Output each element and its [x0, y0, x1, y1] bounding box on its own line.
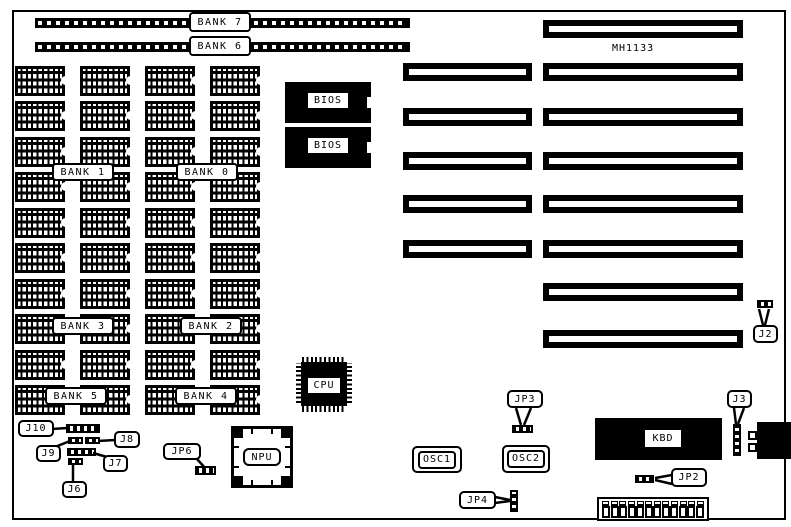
memory-chip	[15, 66, 65, 96]
power-connector	[597, 497, 709, 521]
jumper-label-j3: J3	[727, 390, 752, 408]
bank6-label: BANK 6	[189, 36, 251, 56]
bios-chip-2-label: BIOS	[308, 138, 348, 153]
jumper-pins-jp2	[635, 475, 654, 483]
memory-chip	[15, 350, 65, 380]
expansion-slot	[543, 108, 743, 126]
memory-chip	[145, 101, 195, 131]
keyboard-connector-pin	[748, 443, 757, 452]
memory-chip	[80, 243, 130, 273]
npu-corner	[281, 429, 290, 438]
power-connector-pin	[611, 506, 619, 518]
memory-chip	[80, 279, 130, 309]
bios-chip-notch	[367, 142, 372, 153]
npu-label: NPU	[243, 448, 281, 466]
npu-corner	[234, 429, 243, 438]
kbd-label: KBD	[645, 430, 681, 447]
jumper-label-jp6: JP6	[163, 443, 201, 460]
keyboard-connector-pin	[748, 431, 757, 440]
jumper-label-j2: J2	[753, 325, 778, 343]
memory-chip	[15, 208, 65, 238]
power-connector-pin	[645, 506, 653, 518]
memory-chip	[145, 243, 195, 273]
memory-chip	[145, 66, 195, 96]
bank0-label: BANK 0	[176, 163, 238, 181]
npu-corner	[281, 476, 290, 485]
jumper-pins-j7	[67, 448, 96, 456]
jumper-label-jp3: JP3	[507, 390, 543, 408]
expansion-slot	[403, 108, 532, 126]
power-connector-pin	[662, 506, 670, 518]
osc2-label: OSC2	[507, 450, 545, 468]
bios-chip-notch	[367, 97, 372, 108]
npu-socket: NPU	[231, 426, 293, 488]
memory-chip	[210, 350, 260, 380]
power-connector-pins	[602, 506, 704, 518]
oscillator-osc2: OSC2	[502, 445, 550, 473]
memory-chip	[80, 66, 130, 96]
expansion-slot	[543, 63, 743, 81]
memory-chip	[210, 66, 260, 96]
power-connector-pin	[653, 506, 661, 518]
bank3-label: BANK 3	[52, 317, 114, 335]
keyboard-din-connector	[757, 422, 791, 459]
bios-chip-1-label: BIOS	[308, 93, 348, 108]
expansion-slot	[543, 283, 743, 301]
power-connector-pin	[619, 506, 627, 518]
bank7-label: BANK 7	[189, 12, 251, 32]
cpu-pins-bottom	[302, 406, 346, 412]
bank2-label: BANK 2	[180, 317, 242, 335]
jumper-pins-jp4	[510, 490, 518, 512]
memory-chip	[15, 101, 65, 131]
power-connector-pin	[670, 506, 678, 518]
expansion-slot	[403, 152, 532, 170]
memory-chip	[145, 208, 195, 238]
jumper-pins-jp6	[195, 466, 216, 475]
oscillator-osc1: OSC1	[412, 446, 462, 473]
jumper-label-j7: J7	[103, 455, 128, 472]
jumper-label-j9: J9	[36, 445, 61, 462]
memory-chip	[80, 101, 130, 131]
expansion-slot	[403, 195, 532, 213]
power-connector-pin	[602, 506, 610, 518]
jumper-pins-j8	[85, 437, 100, 444]
jumper-pins-jp3	[512, 425, 533, 433]
expansion-slot	[543, 195, 743, 213]
osc1-label: OSC1	[418, 451, 456, 469]
npu-corner	[234, 476, 243, 485]
expansion-slot	[543, 152, 743, 170]
power-connector-pin	[696, 506, 704, 518]
memory-chip	[210, 208, 260, 238]
jumper-pins-j3	[733, 424, 741, 456]
memory-chip	[15, 243, 65, 273]
jumper-pins-j10	[66, 424, 100, 433]
jumper-label-jp2: JP2	[671, 468, 707, 487]
jumper-pins-j6	[68, 458, 83, 465]
expansion-slot	[543, 20, 743, 38]
memory-chip	[80, 208, 130, 238]
power-connector-pin	[636, 506, 644, 518]
jumper-label-j6: J6	[62, 481, 87, 498]
bank5-label: BANK 5	[45, 387, 107, 405]
memory-chip	[210, 279, 260, 309]
jumper-label-j10: J10	[18, 420, 54, 437]
memory-chip	[80, 350, 130, 380]
memory-chip	[210, 101, 260, 131]
expansion-slot	[543, 330, 743, 348]
bank1-label: BANK 1	[52, 163, 114, 181]
memory-chip	[15, 279, 65, 309]
expansion-slot	[403, 240, 532, 258]
board-model-label: MH1133	[612, 43, 672, 55]
bank4-label: BANK 4	[175, 387, 237, 405]
jumper-pins-j9	[68, 437, 83, 444]
jumper-label-jp4: JP4	[459, 491, 496, 509]
motherboard-diagram: BANK 7 BANK 6 BANK 1 BANK 0 BANK 3 BANK …	[0, 0, 791, 527]
power-connector-pin	[628, 506, 636, 518]
cpu-label: CPU	[308, 378, 340, 393]
expansion-slot	[403, 63, 532, 81]
expansion-slot	[543, 240, 743, 258]
power-connector-pin	[679, 506, 687, 518]
power-connector-pin	[687, 506, 695, 518]
memory-chip	[145, 279, 195, 309]
memory-chip	[145, 350, 195, 380]
jumper-label-j8: J8	[114, 431, 140, 448]
memory-chip	[210, 243, 260, 273]
jumper-pins-j2	[757, 300, 773, 308]
